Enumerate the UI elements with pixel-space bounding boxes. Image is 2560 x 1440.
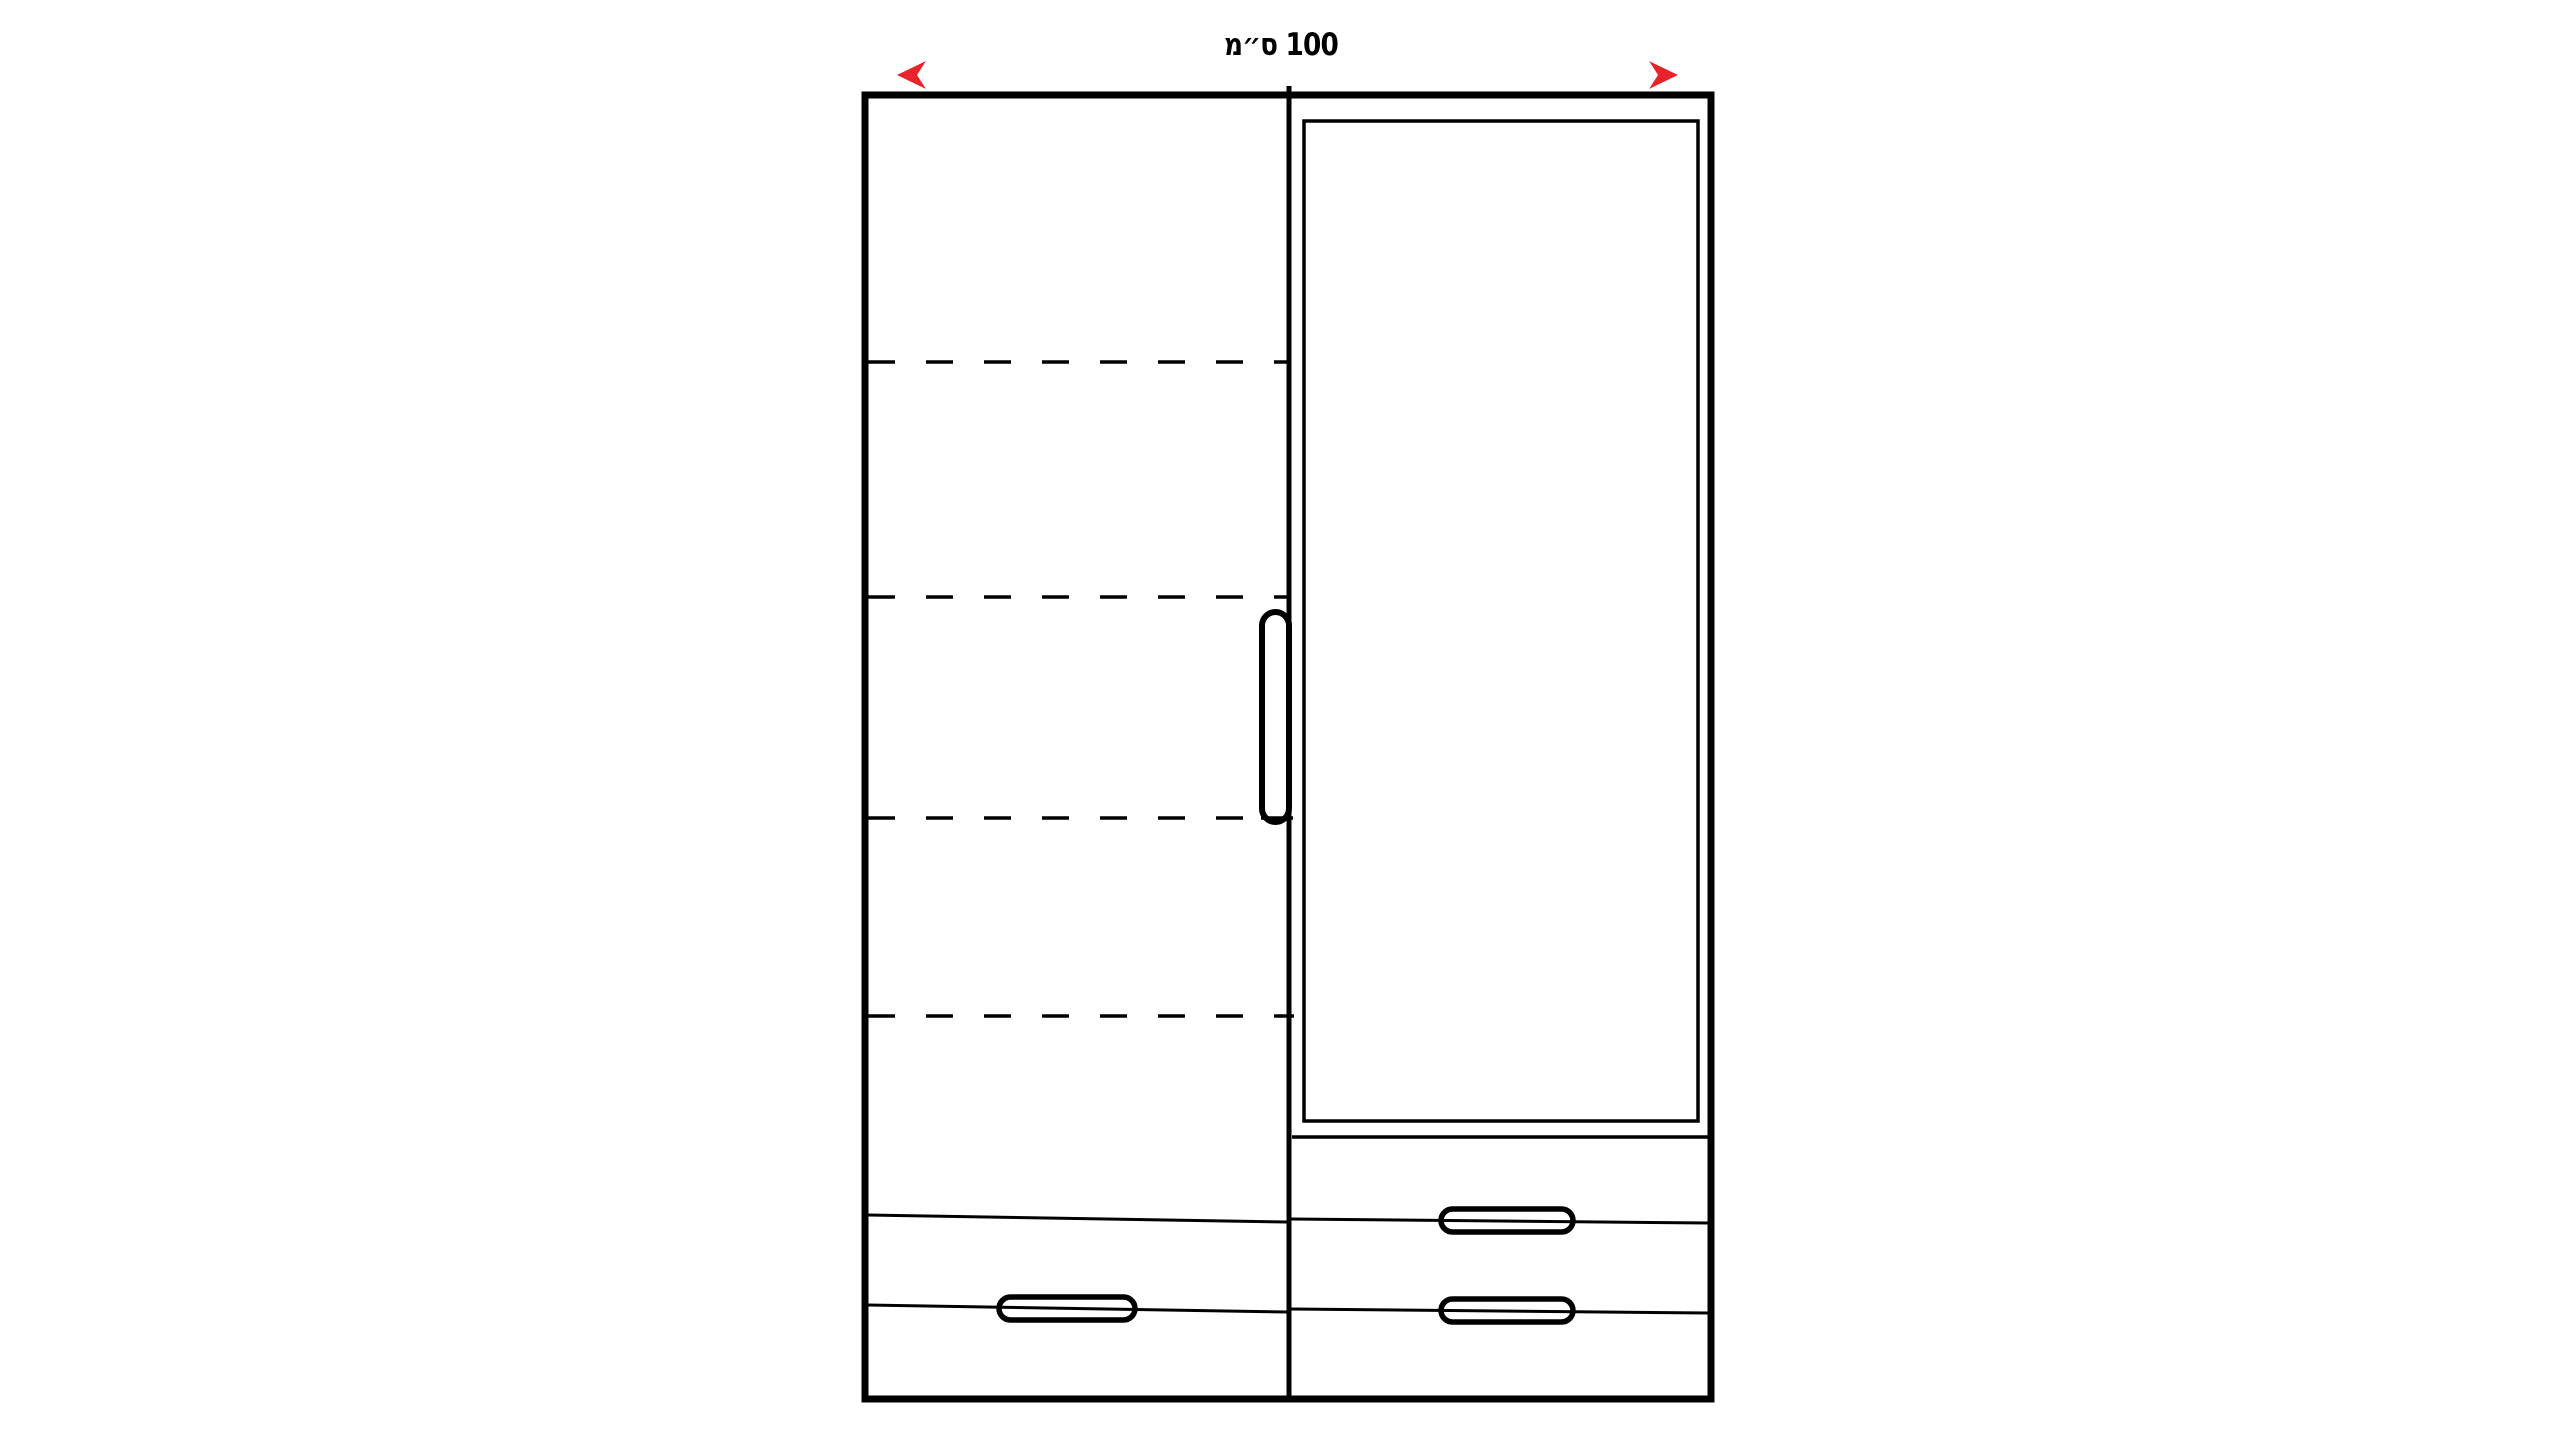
left-door-handle xyxy=(1262,612,1289,822)
wardrobe-drawing xyxy=(0,0,2560,1440)
diagram-canvas: 100 ס״מ xyxy=(0,0,2560,1440)
dimension-arrow-icon xyxy=(897,61,1678,89)
